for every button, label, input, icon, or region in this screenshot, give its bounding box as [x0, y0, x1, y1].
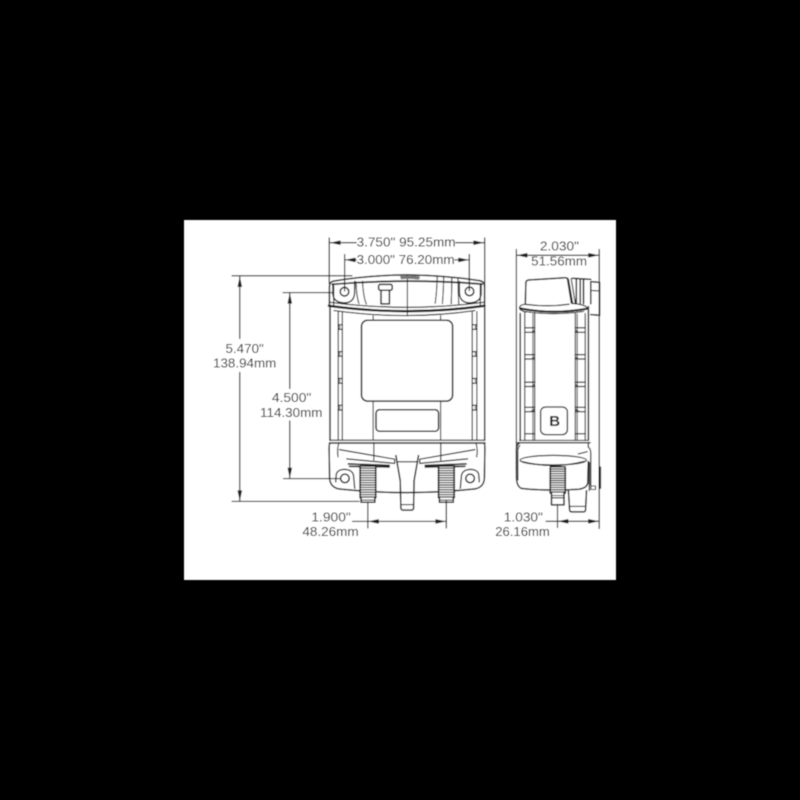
svg-text:138.94mm: 138.94mm: [213, 356, 276, 371]
svg-text:1.900": 1.900": [311, 510, 351, 525]
svg-text:5.470": 5.470": [226, 341, 265, 356]
svg-text:3.750" 95.25mm: 3.750" 95.25mm: [357, 234, 456, 249]
svg-text:2.030": 2.030": [540, 238, 579, 253]
svg-text:26.16mm: 26.16mm: [495, 524, 549, 539]
svg-text:51.56mm: 51.56mm: [531, 254, 587, 269]
svg-text:48.26mm: 48.26mm: [302, 524, 358, 539]
svg-text:3.000" 76.20mm: 3.000" 76.20mm: [357, 252, 455, 267]
svg-text:4.500": 4.500": [272, 390, 312, 405]
svg-text:114.30mm: 114.30mm: [260, 405, 323, 420]
svg-text:B: B: [549, 413, 560, 430]
svg-text:1.030": 1.030": [504, 510, 543, 525]
